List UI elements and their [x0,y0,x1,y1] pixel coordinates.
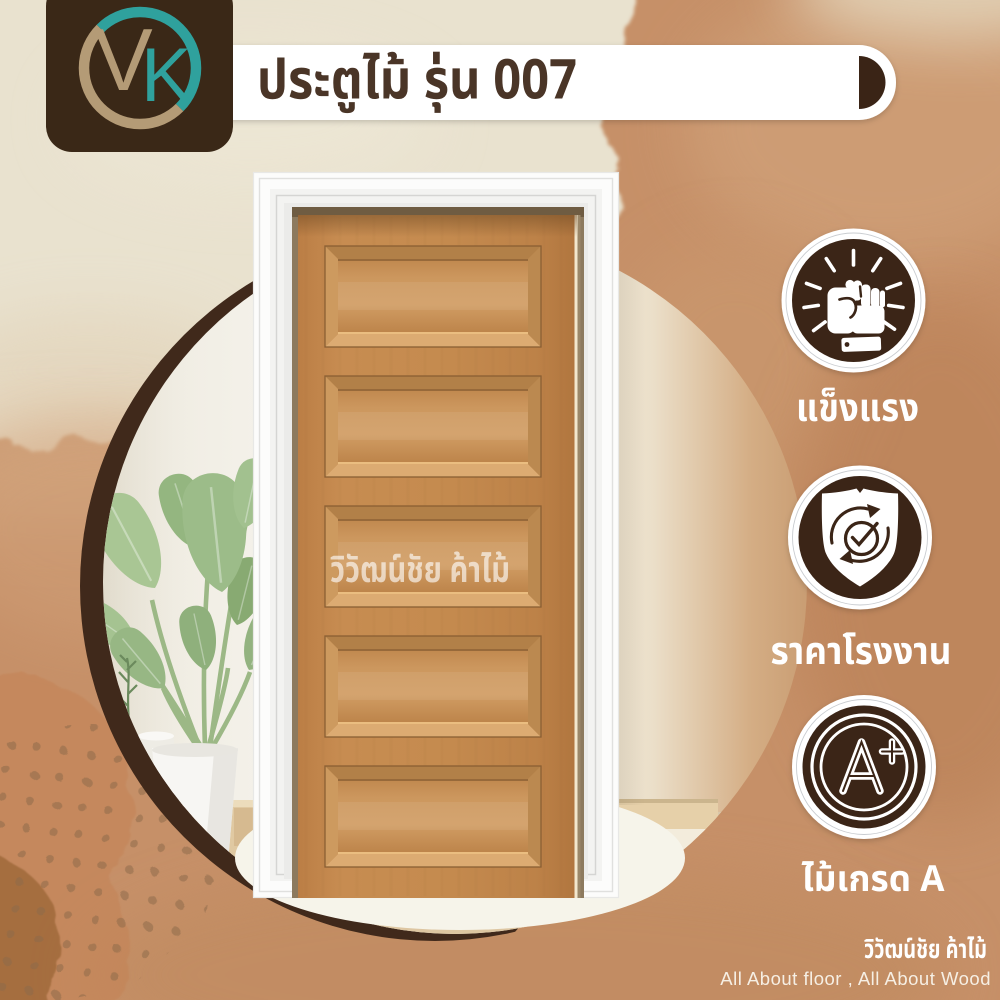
svg-text:All About floor , All About Wo: All About floor , All About Wood [720,968,991,989]
svg-text:K: K [141,33,192,118]
